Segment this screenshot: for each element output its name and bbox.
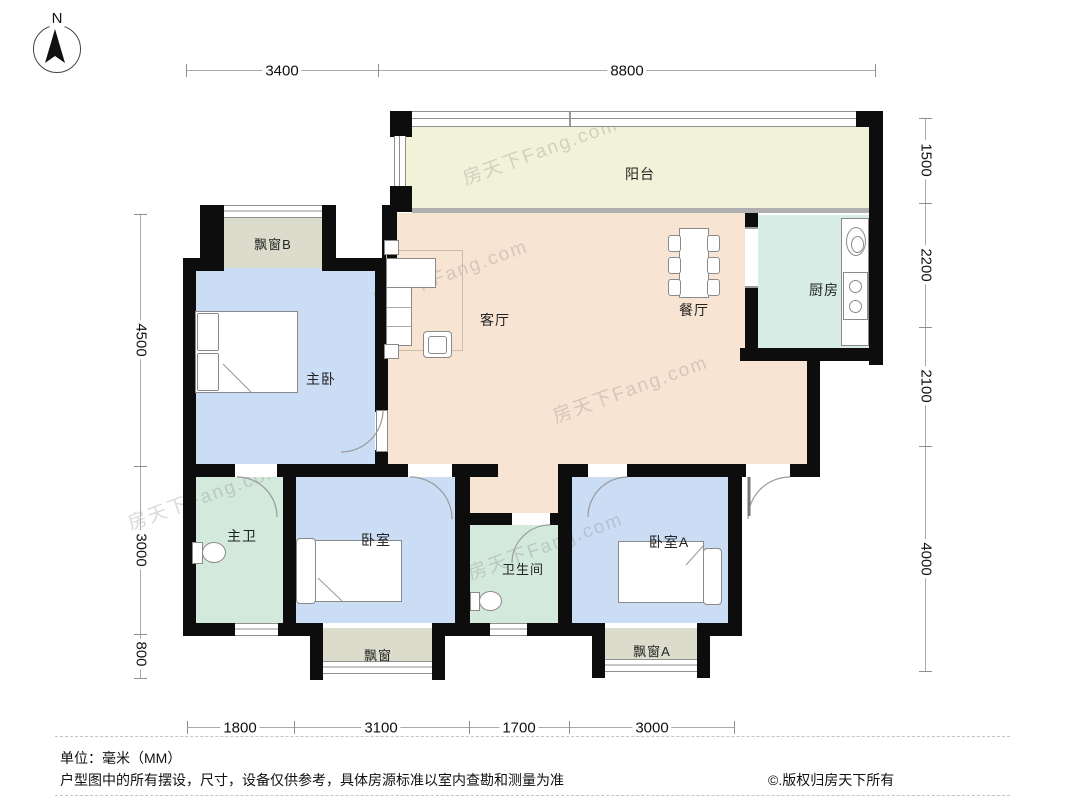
wall-segment [283,464,296,636]
bedroom-door-frame [408,464,452,477]
bedroom-a-bed-headboard [703,548,722,605]
dimension-tick [569,721,570,734]
wall-segment [390,111,412,137]
master-bath-door-frame [235,464,277,477]
dimension-value: 1500 [918,140,935,179]
wall-segment [558,464,572,636]
master-bedroom-door-panel [376,410,388,452]
balcony-divider [412,208,869,213]
balcony-side-window [394,136,406,186]
stove-burner [849,300,862,313]
compass-icon [33,25,81,73]
wall-segment [196,464,235,477]
dimension-tick [469,721,470,734]
balcony-window [412,111,856,127]
pillow [197,313,219,351]
dimension-value: 3000 [632,720,671,737]
balcony-window-mullion [569,112,571,126]
dimension-tick [134,214,147,215]
dimension-tick [378,64,379,77]
wall-segment [322,205,336,271]
bay-window-b-glazing [224,205,322,218]
dimension-value: 800 [133,638,150,669]
dimension-value: 8800 [607,63,646,80]
room-label-living-room: 客厅 [450,310,540,330]
wall-segment [432,623,445,680]
bathroom-door-frame [512,513,550,525]
wall-segment [697,623,710,678]
footer-divider [55,736,1010,737]
wall-segment [200,205,224,271]
dimension-tick [134,466,147,467]
side-table [384,344,399,359]
toilet-bowl [479,591,502,611]
dining-chair [668,279,681,296]
dimension-line-left [140,214,141,679]
room-label-kitchen: 厨房 [779,280,869,300]
wall-segment [592,623,605,678]
dimension-tick [919,327,932,328]
dimension-tick [875,64,876,77]
dining-table [679,228,709,298]
bay-window-a-glazing [605,659,697,672]
dimension-tick [919,671,932,672]
entry-door-arc [748,477,790,519]
dimension-tick [919,118,932,119]
sofa-cushion-line [387,326,411,327]
wall-segment [728,464,742,636]
room-label-bedroom: 卧室 [331,530,421,550]
dining-chair [707,279,720,296]
footer-disclaimer: 户型图中的所有摆设，尺寸，设备仅供参考，具体房源标准以室内查勘和测量为准 [60,770,564,790]
compass-north-label: N [50,10,65,27]
dining-chair [707,257,720,274]
master-bath-window [235,623,278,636]
room-label-bathroom: 卫生间 [478,559,568,578]
footer-copyright: ©.版权归房天下所有 [768,770,894,790]
dimension-value: 3100 [361,720,400,737]
bathroom-window [490,623,527,636]
wall-segment [869,111,883,365]
sofa [386,287,412,346]
dimension-tick [294,721,295,734]
dimension-value: 3000 [133,530,150,569]
wall-segment [277,464,408,477]
footer-bottom-divider [55,795,1010,796]
wall-segment [790,464,820,477]
wall-segment [390,186,412,212]
kitchen-sink-basin [851,236,864,253]
bedroom-bed-headboard [296,538,316,604]
side-table [384,240,399,255]
dimension-tick [186,64,187,77]
dimension-tick [187,721,188,734]
dining-chair [668,235,681,252]
dining-lower-floor [745,361,807,464]
kitchen-doorway [745,227,758,288]
dimension-tick [919,203,932,204]
floor-plan: 房天下Fang.com 房天下Fang.com 房天下Fang.com 房天下F… [0,0,1066,800]
sofa [386,258,436,288]
dimension-tick [919,446,932,447]
dimension-value: 4500 [133,320,150,359]
room-label-master-bath: 主卫 [197,526,287,546]
bedroom-a-door-frame [588,464,627,477]
wall-segment [310,623,323,680]
room-label-dining-room: 餐厅 [649,300,739,320]
room-label-balcony: 阳台 [595,164,685,184]
wall-segment [745,288,758,352]
dimension-tick [734,721,735,734]
wall-segment [455,464,470,636]
room-label-bedroom-a: 卧室A [624,532,714,552]
wall-segment [710,623,742,636]
wall-segment [278,623,310,636]
wall-segment [445,623,490,636]
room-label-bay-window: 飘窗 [333,645,423,664]
dimension-value: 1800 [220,720,259,737]
entry-door-frame [746,464,790,477]
dimension-value: 2100 [918,366,935,405]
wall-segment [527,623,592,636]
sofa-cushion-line [387,307,411,308]
pillow [197,353,219,391]
dining-chair [668,257,681,274]
dimension-value: 1700 [499,720,538,737]
wall-segment [807,348,820,477]
footer-unit: 单位：毫米（MM） [60,748,181,768]
dimension-tick [134,678,147,679]
dimension-tick [134,634,147,635]
wall-segment [183,623,235,636]
dimension-value: 2200 [918,245,935,284]
room-label-bay-window-b: 飘窗B [228,234,318,253]
dining-chair [707,235,720,252]
armchair-seat [428,336,447,354]
wall-segment [550,513,558,525]
room-label-bay-window-a: 飘窗A [607,641,697,660]
dimension-value: 3400 [262,63,301,80]
room-label-master-bedroom: 主卧 [276,369,366,389]
dimension-value: 4000 [918,539,935,578]
wall-segment [470,513,512,525]
